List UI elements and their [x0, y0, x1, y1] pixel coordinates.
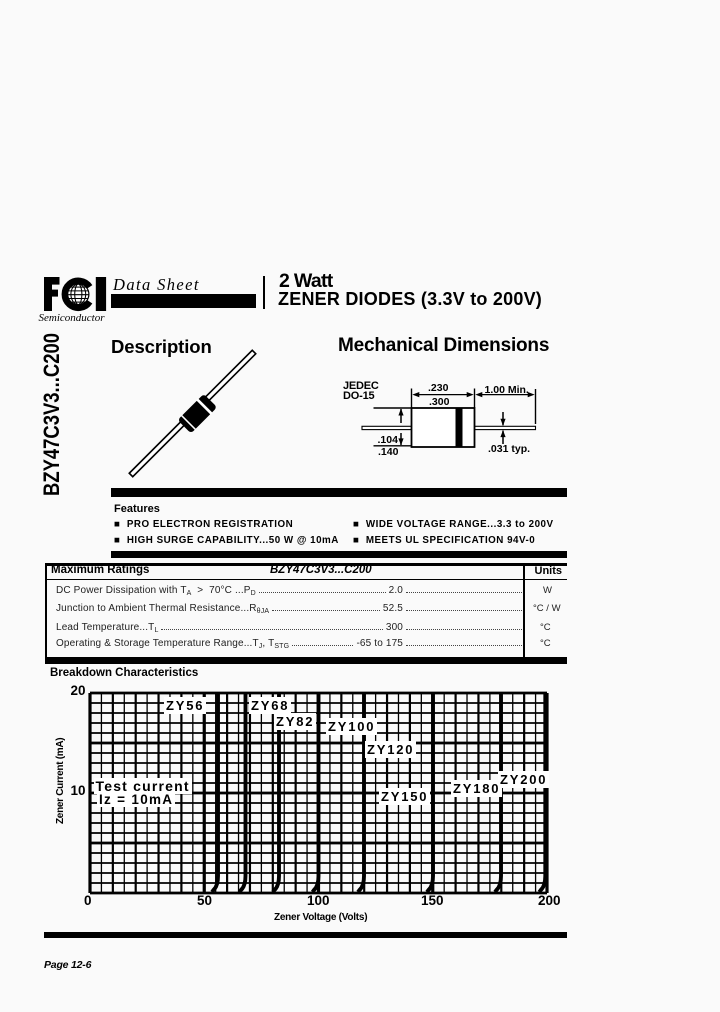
- svg-text:BZY47C3V3...C200: BZY47C3V3...C200: [39, 333, 64, 496]
